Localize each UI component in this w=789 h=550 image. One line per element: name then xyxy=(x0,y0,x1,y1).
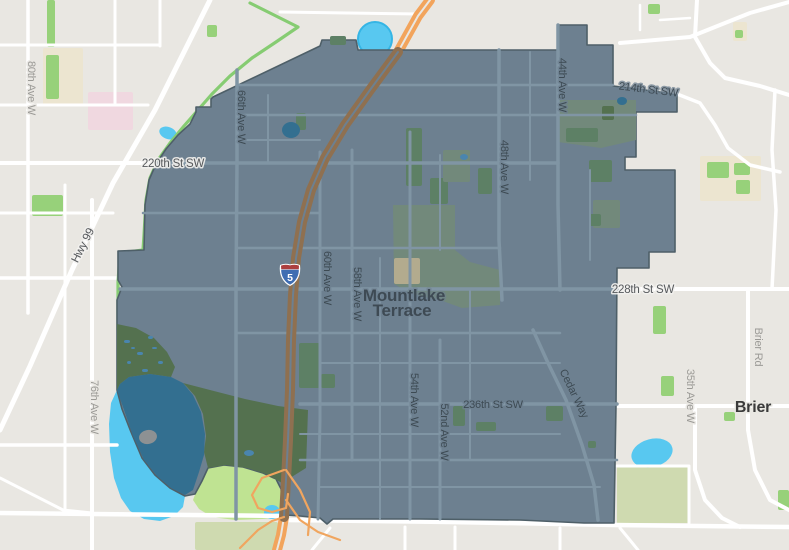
shield-route-number: 5 xyxy=(287,272,293,284)
map-label-48th-ave-w: 48th Ave W xyxy=(498,140,510,195)
pink-area xyxy=(88,92,133,130)
creek-park-4 xyxy=(478,168,492,194)
marsh-dab-4 xyxy=(158,361,163,364)
beige-tr-green xyxy=(735,30,743,38)
creek-park-1 xyxy=(406,128,422,186)
park-brier-1 xyxy=(661,376,674,396)
road-outside xyxy=(280,12,420,14)
map-label-80th-ave-w: 80th Ave W xyxy=(25,61,37,116)
road-outside xyxy=(0,513,285,516)
map-label-220th-st-sw: 220th St SW xyxy=(142,158,205,170)
map-label-58th-ave-w: 58th Ave W xyxy=(351,267,363,322)
pond-forest xyxy=(244,450,254,456)
map-label-44th-ave-w: 44th Ave W xyxy=(556,58,568,113)
ne-park-green-2 xyxy=(602,106,614,120)
marsh-dab-5 xyxy=(142,369,148,372)
map-label-76th-ave-w: 76th Ave W xyxy=(88,380,100,435)
map-svg[interactable]: 80th Ave W66th Ave W220th St SWHwy 9976t… xyxy=(0,0,789,550)
ne-park-green-1 xyxy=(566,128,598,142)
pond-creek xyxy=(460,154,468,160)
map-label-60th-ave-w: 60th Ave W xyxy=(321,251,333,306)
park-f xyxy=(330,36,346,45)
marsh-dab-8 xyxy=(131,347,135,349)
map-label-228th-st-sw: 228th St SW xyxy=(612,284,675,296)
map-label-66th-ave-w: 66th Ave W xyxy=(235,90,247,145)
map-label-52nd-ave-w: 52nd Ave W xyxy=(438,403,450,461)
school-field-tan xyxy=(394,258,420,284)
park-ne-small xyxy=(648,4,660,14)
park-nw-small xyxy=(207,25,217,37)
shield-part xyxy=(281,265,299,269)
marsh-dab-1 xyxy=(124,340,130,343)
map-label-236th-st-sw: 236th St SW xyxy=(463,399,523,411)
pond-66th xyxy=(282,122,300,138)
map-label-35th-ave-w: 35th Ave W xyxy=(684,369,696,424)
map-label-54th-ave-w: 54th Ave W xyxy=(408,373,420,428)
map-label-brier-rd: Brier Rd xyxy=(752,328,764,367)
marsh-dab-7 xyxy=(152,347,157,349)
green-strip-north xyxy=(47,0,55,47)
school-green-nw xyxy=(46,55,59,99)
marsh-dab-2 xyxy=(137,352,143,355)
map-label-terrace: Terrace xyxy=(373,301,432,320)
pond-ne-small xyxy=(617,97,627,105)
ne-park-green-3 xyxy=(589,160,612,182)
park-g xyxy=(546,406,563,421)
park-h xyxy=(588,441,596,448)
park-east-strip xyxy=(653,306,666,334)
beige-ne-green-3 xyxy=(736,180,750,194)
map-canvas[interactable]: 80th Ave W66th Ave W220th St SWHwy 9976t… xyxy=(0,0,789,550)
marsh-dab-3 xyxy=(148,336,153,339)
marsh-dab-6 xyxy=(127,361,131,364)
park-b xyxy=(321,374,335,388)
park-a xyxy=(299,343,320,388)
park-brier-2 xyxy=(724,412,735,421)
park-d xyxy=(476,422,496,431)
pale-green-se xyxy=(617,466,689,523)
map-label-brier: Brier xyxy=(735,399,771,416)
beige-ne-green-1 xyxy=(707,162,729,178)
